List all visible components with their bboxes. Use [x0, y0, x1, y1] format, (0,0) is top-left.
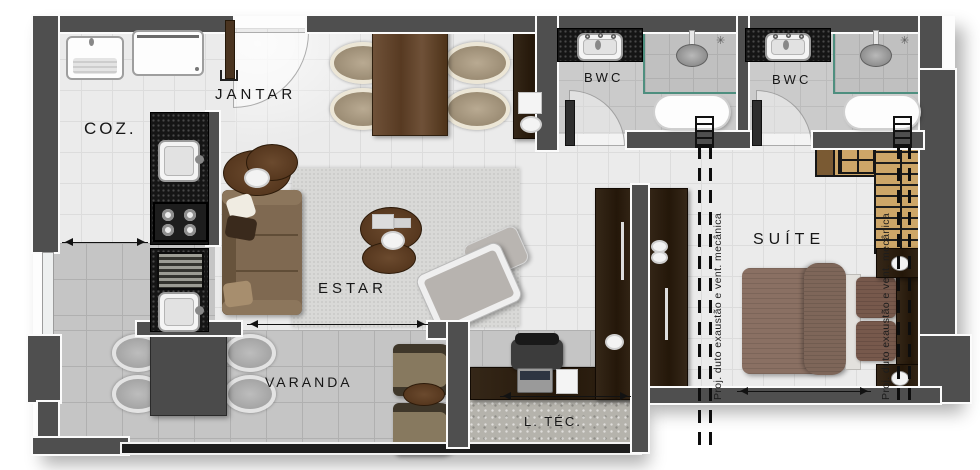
desk-box [556, 369, 578, 394]
bwc1-vent-icon: ✳ [716, 34, 725, 47]
kitchen-faucet [195, 155, 204, 164]
duct-shaft-symbol [893, 116, 912, 148]
dimension-line-kitchen-opening [62, 242, 148, 243]
burner-icon [184, 209, 196, 221]
wall-right-upper [920, 16, 942, 74]
duct-shaft-symbol [695, 116, 714, 148]
laptop [517, 368, 553, 393]
tank-faucet [89, 38, 94, 46]
wall-varanda-right [448, 322, 468, 447]
wall-bwc1-bottom [627, 132, 750, 148]
tank-basin [73, 58, 117, 74]
sofa-cushion-line [236, 270, 298, 272]
duct-annotation: Proj. duto exaustão e vent. mecânica [712, 148, 724, 400]
kitchen-sink [158, 140, 200, 182]
wardrobe-divider [900, 142, 902, 252]
grill [157, 252, 204, 290]
coffee-table-cup [381, 231, 405, 250]
duct-annotation: Proj. duto exaustão e vent. mecânica [880, 202, 892, 400]
wall-left-pillar [28, 336, 60, 402]
bwc1-door [565, 100, 575, 146]
bwc1-shower-head [676, 44, 708, 67]
wall-top-left [33, 16, 233, 32]
sofa-pillow [222, 280, 253, 308]
cabinet-knob [605, 334, 624, 350]
room-label-ltec: L. TÉC. [524, 414, 582, 429]
bwc1-toilet [655, 96, 729, 128]
dining-chair [444, 42, 510, 84]
nightstand-lamp [891, 371, 909, 386]
cabinet-estar-side [595, 188, 635, 400]
stove [153, 202, 208, 242]
coffee-table-remote [394, 218, 411, 228]
wall-estar-suite [632, 185, 648, 452]
cabinet-handle [621, 222, 624, 280]
room-label-jantar: JANTAR [215, 86, 296, 103]
dining-chair [444, 88, 510, 130]
room-label-suite: SUÍTE [753, 231, 825, 249]
varanda-faucet [195, 306, 204, 315]
suite-cabinet-handle [665, 288, 668, 340]
duct-projection-line [897, 146, 900, 400]
room-label-bwc1: BWC [584, 70, 623, 85]
dining-table [372, 30, 448, 136]
window-left [42, 252, 54, 338]
bwc2-shower-head [860, 44, 892, 67]
entry-door-stop [220, 70, 238, 81]
laundry-tank-sink [66, 36, 124, 80]
washer-panel [137, 35, 199, 38]
wall-left-upper [33, 16, 58, 252]
washing-machine [132, 30, 204, 76]
duct-projection-line [908, 146, 911, 400]
kitchen-sink-basin [164, 146, 194, 176]
coffee-table-remote [372, 214, 394, 229]
varanda-railing [122, 444, 640, 453]
office-chair-back [515, 333, 559, 345]
varanda-table [150, 332, 227, 416]
room-label-coz: COZ. [84, 119, 137, 139]
bwc2-door [752, 100, 762, 146]
bwc2-vent-icon: ✳ [900, 34, 909, 47]
laptop-screen [520, 371, 550, 380]
bwc1-faucet [595, 40, 601, 50]
varanda-sink-basin [164, 298, 194, 326]
varanda-sink [158, 292, 200, 332]
wall-bottom-left-corner [33, 438, 128, 454]
sideboard-decor-box [518, 92, 542, 114]
varanda-side-table [403, 383, 445, 406]
suite-cabinet-knob [651, 251, 668, 264]
burner-icon [184, 224, 196, 236]
dimension-line-ltec [500, 396, 631, 397]
sideboard-plate [520, 116, 542, 133]
office-chair [511, 339, 563, 370]
bed-fold [804, 263, 846, 375]
side-table-cup [244, 168, 270, 188]
room-label-estar: ESTAR [318, 280, 387, 297]
duct-projection-line [698, 146, 701, 446]
burner-icon [162, 209, 174, 221]
dimension-line-estar-opening [247, 324, 428, 325]
washer-knob [195, 67, 199, 71]
nightstand-lamp [891, 256, 909, 271]
wall-right-main [920, 70, 955, 340]
bwc2-faucet [783, 40, 789, 50]
room-label-bwc2: BWC [772, 72, 811, 87]
wall-varanda-notch [428, 322, 450, 338]
varanda-chair [224, 334, 276, 372]
dimension-line-suite [737, 391, 871, 392]
burner-icon [162, 224, 174, 236]
wall-bwc1-left [537, 16, 557, 150]
floor-plan: ✳ ✳ Proj. duto exaustão e vent. mecânica… [0, 0, 980, 470]
room-label-varanda: VARANDA [265, 374, 353, 390]
